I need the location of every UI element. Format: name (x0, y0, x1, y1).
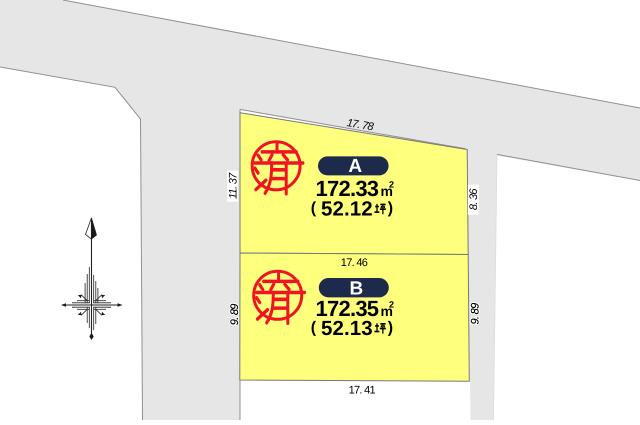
svg-text:(: ( (311, 320, 317, 337)
svg-text:): ) (388, 200, 393, 217)
svg-text:2: 2 (389, 300, 394, 310)
svg-text:8. 36: 8. 36 (468, 188, 480, 211)
svg-text:11. 37: 11. 37 (227, 172, 239, 199)
svg-text:52.13: 52.13 (321, 317, 373, 340)
svg-text:52.12: 52.12 (321, 197, 373, 220)
svg-text:A: A (348, 156, 362, 177)
svg-text:17. 41: 17. 41 (349, 385, 376, 397)
svg-text:9. 89: 9. 89 (229, 304, 241, 326)
svg-text:17. 46: 17. 46 (341, 257, 368, 269)
svg-text:(: ( (311, 200, 317, 217)
svg-text:): ) (388, 320, 393, 337)
svg-text:2: 2 (389, 180, 394, 190)
svg-text:9. 89: 9. 89 (469, 303, 481, 325)
